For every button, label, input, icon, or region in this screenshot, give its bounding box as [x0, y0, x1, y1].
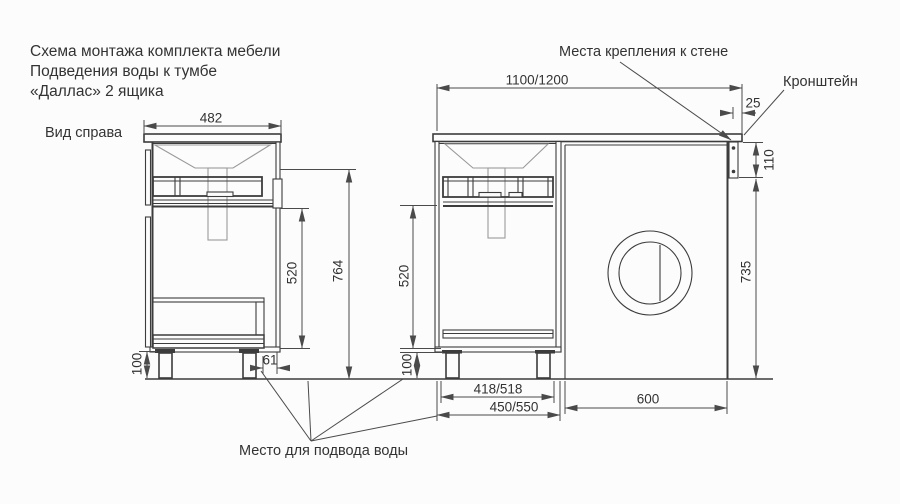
- wm-door-inner: [619, 242, 681, 304]
- dim-front-open-height-label: 520: [397, 265, 411, 288]
- sink-bowl-side: [155, 145, 270, 168]
- dim-cabinet-width-label: 450/550: [490, 400, 539, 414]
- front-leg-left: [446, 353, 459, 378]
- side-view-caption: Вид справа: [45, 126, 122, 141]
- water-leader-2: [308, 381, 311, 441]
- sink-bowl-front: [445, 144, 548, 168]
- drawing-canvas: Схема монтажа комплекта мебели Подведени…: [0, 0, 900, 504]
- wm-door-outer: [608, 231, 692, 315]
- annotation-bracket: Кронштейн: [783, 75, 858, 90]
- leader-lines: [261, 62, 784, 441]
- title-line-2: Подведения воды к тумбе: [30, 62, 280, 82]
- front-leg-right: [537, 353, 550, 378]
- water-leader-1: [261, 371, 311, 441]
- title-block: Схема монтажа комплекта мебели Подведени…: [30, 42, 280, 102]
- dim-legs-span-label: 418/518: [474, 382, 523, 396]
- dim-side-height-label: 764: [331, 260, 345, 283]
- front-view-drawing: [433, 134, 742, 379]
- drain-pipe-front: [488, 168, 505, 238]
- wall-mount-leader: [620, 62, 731, 140]
- dim-countertop-length-label: 1100/1200: [506, 73, 569, 87]
- side-view-drawing: [144, 134, 282, 378]
- wall-rail-side: [273, 179, 282, 208]
- bracket: [729, 142, 738, 178]
- drawer-front-upper: [146, 150, 151, 205]
- dim-back-offset-label: 61: [262, 353, 277, 367]
- dim-bracket-height-label: 110: [762, 149, 776, 171]
- side-leg-front: [159, 353, 172, 378]
- title-line-1: Схема монтажа комплекта мебели: [30, 42, 280, 62]
- bracket-screw-top: [732, 146, 736, 150]
- annotation-water-supply: Место для подвода воды: [239, 444, 408, 459]
- bracket-screw-bottom: [732, 170, 736, 174]
- drawer-front-lower: [146, 217, 151, 347]
- side-leg-back: [243, 353, 256, 378]
- dim-bracket-offset-label: 25: [745, 96, 760, 110]
- dim-wm-width-label: 600: [637, 392, 660, 406]
- dim-side-open-height-label: 520: [285, 262, 299, 285]
- dim-side-legs-label: 100: [130, 353, 144, 376]
- front-countertop: [433, 134, 742, 142]
- dim-wm-clearance-label: 735: [739, 261, 753, 284]
- washing-machine: [565, 141, 728, 379]
- annotation-wall-mount-points: Места крепления к стене: [559, 45, 728, 60]
- bottom-drawer-side: [153, 335, 264, 348]
- dim-side-depth-label: 482: [200, 111, 223, 125]
- title-line-3: «Даллас» 2 ящика: [30, 82, 280, 102]
- dim-front-legs-label: 100: [400, 354, 414, 377]
- side-countertop: [144, 134, 281, 142]
